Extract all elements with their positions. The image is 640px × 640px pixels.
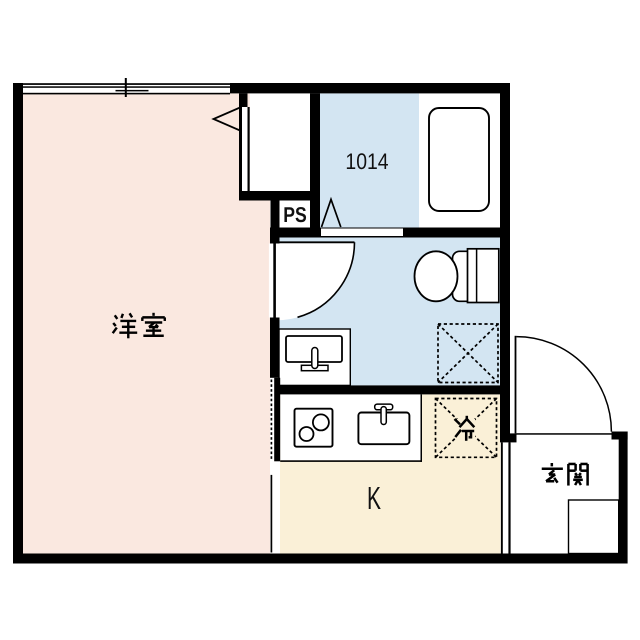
svg-text:K: K bbox=[367, 480, 381, 516]
svg-text:1014: 1014 bbox=[345, 149, 388, 174]
svg-text:PS: PS bbox=[283, 203, 307, 227]
